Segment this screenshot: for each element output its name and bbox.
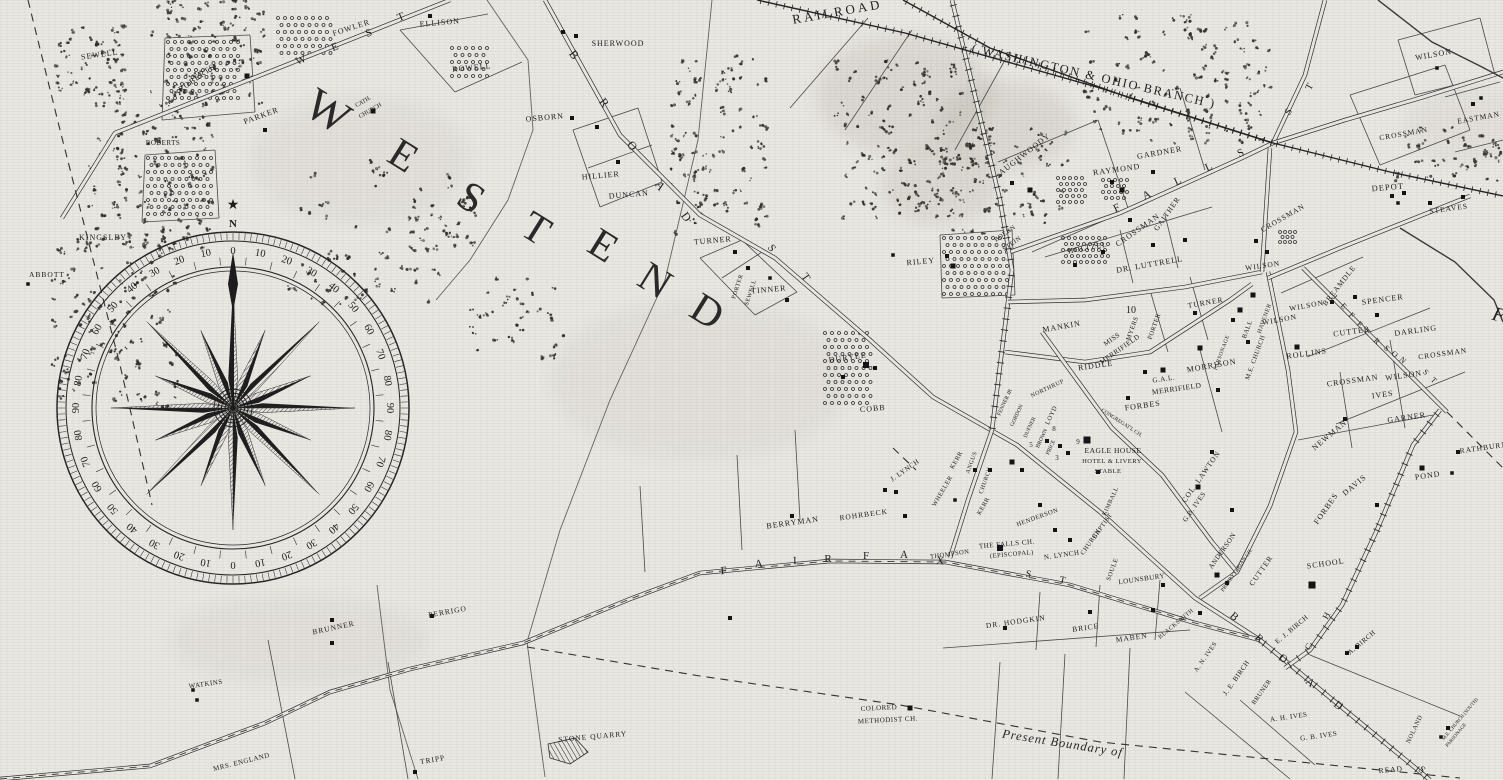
tree-cluster-dot: [693, 132, 698, 138]
tree-cluster-dot: [694, 222, 697, 224]
tree-cluster-dot: [129, 339, 134, 343]
tree-cluster-dot: [1247, 125, 1252, 130]
tree-cluster-dot: [491, 311, 494, 314]
tree-cluster-dot: [681, 59, 685, 64]
tree-cluster-dot: [1108, 107, 1111, 111]
street-name-letter: A: [754, 558, 763, 571]
tree-cluster-dot: [101, 213, 107, 217]
building-footprint: [1183, 238, 1187, 242]
tree-cluster-dot: [465, 235, 469, 240]
tree-cluster-dot: [1434, 164, 1439, 167]
tree-cluster-dot: [144, 233, 148, 237]
tree-cluster-dot: [1210, 55, 1214, 59]
tree-cluster-dot: [69, 37, 72, 41]
tree-cluster-dot: [1084, 30, 1089, 33]
tree-cluster-dot: [172, 0, 177, 4]
tree-cluster-dot: [1234, 40, 1237, 43]
building-footprint: [785, 298, 789, 302]
tree-cluster-dot: [1214, 78, 1219, 82]
tree-cluster-dot: [732, 77, 735, 80]
tree-cluster-dot: [1244, 118, 1249, 124]
tree-cluster-dot: [739, 60, 743, 65]
tree-cluster-dot: [67, 71, 72, 74]
tree-cluster-dot: [1206, 132, 1211, 134]
tree-cluster-dot: [113, 84, 116, 88]
tree-cluster-dot: [419, 237, 425, 242]
building-footprint: [1353, 295, 1357, 299]
tree-cluster-dot: [1061, 163, 1064, 166]
building-footprint: [1161, 368, 1166, 373]
parcel-line: [1240, 700, 1315, 765]
compass-degree-label: 10: [254, 556, 266, 569]
tree-cluster-dot: [454, 233, 459, 238]
map-label: BRICE: [1072, 621, 1100, 634]
building-footprint: [1126, 396, 1130, 400]
parcel-line: [1398, 18, 1480, 40]
tree-cluster-dot: [125, 188, 128, 192]
tree-cluster-dot: [1137, 35, 1141, 38]
compass-degree-label: 10: [254, 248, 266, 261]
tree-cluster-dot: [181, 17, 186, 21]
tree-cluster-dot: [219, 0, 225, 3]
street-name-letter: A: [900, 549, 908, 561]
tree-cluster-dot: [1203, 28, 1208, 33]
map-label: ROHRBECK: [839, 507, 889, 523]
street-name-letter: I: [793, 555, 797, 567]
tree-cluster-dot: [456, 221, 460, 225]
compass-degree-label: 60: [361, 322, 376, 337]
map-label: CROSSMAN: [1326, 372, 1379, 388]
tree-cluster-dot: [120, 53, 124, 56]
tree-cluster-dot: [1267, 49, 1271, 53]
building-footprint: [733, 250, 737, 254]
map-label: TURNER: [693, 234, 732, 246]
tree-cluster-dot: [702, 194, 708, 198]
tree-cluster-dot: [71, 29, 75, 34]
tree-cluster-dot: [709, 169, 712, 173]
map-label: MANKIN: [1042, 319, 1082, 335]
tree-cluster-dot: [1233, 21, 1237, 27]
tree-cluster-dot: [179, 4, 184, 8]
tree-cluster-dot: [1086, 96, 1091, 99]
map-label: 9: [1076, 438, 1080, 446]
tree-cluster-dot: [238, 62, 242, 67]
tree-cluster-dot: [1263, 84, 1266, 88]
map-label: E. J. BIRCH: [1273, 613, 1309, 645]
tree-cluster-dot: [93, 86, 98, 91]
map-label: WHEELER: [931, 474, 954, 508]
tree-cluster-dot: [414, 279, 417, 284]
tree-cluster-dot: [196, 216, 201, 222]
tree-cluster-dot: [962, 229, 966, 233]
tree-cluster-dot: [95, 102, 98, 107]
tree-cluster-dot: [169, 361, 174, 366]
tree-cluster-dot: [683, 173, 689, 177]
compass-star-icon: ★: [227, 198, 240, 213]
tree-cluster-dot: [408, 245, 412, 249]
tree-cluster-dot: [1137, 116, 1142, 121]
map-label: GORDON: [1009, 404, 1024, 428]
tree-cluster-dot: [1148, 118, 1154, 124]
tree-cluster-dot: [345, 296, 349, 300]
tree-cluster-dot: [1198, 75, 1203, 78]
tree-cluster-dot: [117, 134, 120, 137]
tree-cluster-dot: [1136, 129, 1140, 132]
building-footprint: [1038, 503, 1042, 507]
map-label: DARLING: [1394, 323, 1438, 338]
map-label: LOUNSBURY: [1118, 572, 1166, 586]
map-label: PRESBYTERIAN CH.: [1220, 547, 1255, 593]
tree-cluster-dot: [262, 11, 265, 16]
compass-degree-label: 60: [90, 322, 105, 337]
street-name-letter: R: [824, 553, 832, 565]
tree-cluster-dot: [69, 316, 73, 319]
tree-cluster-dot: [62, 280, 66, 283]
tree-cluster-dot: [1140, 57, 1145, 61]
building-footprint: [894, 490, 898, 494]
tree-cluster-dot: [241, 59, 244, 64]
compass-point: [233, 408, 319, 494]
tree-cluster-dot: [115, 331, 119, 337]
edge-letter-label: F: [1489, 303, 1503, 328]
tree-cluster-dot: [1093, 110, 1096, 113]
present-boundary-label: Present Boundary of: [1000, 726, 1124, 759]
map-label: WILSON: [1288, 298, 1324, 313]
map-label: DR. HODGKIN: [985, 613, 1046, 630]
compass-degree-label: 60: [361, 479, 376, 494]
tree-cluster-dot: [732, 130, 735, 133]
tree-cluster-dot: [100, 267, 103, 269]
tree-cluster-dot: [1184, 27, 1189, 32]
tree-cluster-dot: [1089, 60, 1095, 64]
tree-cluster-dot: [60, 50, 65, 53]
tree-cluster-dot: [136, 114, 140, 118]
street-name-letter: F: [1111, 202, 1122, 215]
tree-cluster-dot: [704, 197, 708, 201]
tree-cluster-dot: [1247, 102, 1252, 107]
map-label: 10: [1126, 305, 1136, 316]
tree-cluster-dot: [424, 227, 429, 231]
tree-cluster-dot: [1013, 212, 1016, 215]
map-label: WILSON: [1415, 47, 1453, 62]
tree-cluster-dot: [1498, 160, 1500, 163]
tree-cluster-dot: [1030, 210, 1034, 216]
tree-cluster-dot: [513, 289, 516, 291]
tree-cluster-dot: [184, 127, 189, 130]
tree-cluster-dot: [127, 232, 132, 238]
tree-cluster-dot: [174, 396, 177, 398]
tree-cluster-dot: [739, 125, 742, 128]
tree-cluster-dot: [1193, 73, 1198, 79]
map-label: FORBES: [1124, 399, 1161, 413]
map-label: GARNER: [1387, 410, 1427, 424]
tree-cluster-dot: [552, 287, 557, 290]
building-footprint: [1058, 444, 1062, 448]
building-footprint: [1251, 293, 1256, 298]
tree-cluster-dot: [196, 153, 199, 156]
map-label: DAVIS: [1341, 473, 1369, 498]
map-label: CUTTER: [1333, 324, 1371, 338]
map-label: GARDNER: [1136, 144, 1183, 161]
tree-cluster-dot: [430, 213, 433, 216]
tree-cluster-dot: [109, 81, 113, 84]
building-footprint: [1295, 345, 1300, 350]
tree-cluster-dot: [861, 152, 866, 157]
tree-cluster-dot: [1118, 121, 1121, 125]
tree-cluster-dot: [93, 189, 97, 194]
building-footprint: [574, 34, 578, 38]
tree-cluster-dot: [469, 308, 474, 311]
map-label: HENDERSON: [1016, 507, 1060, 529]
tree-cluster-dot: [1125, 64, 1130, 69]
building-footprint: [1101, 250, 1105, 254]
map-label: IVES: [1371, 389, 1394, 401]
tree-cluster-dot: [167, 309, 171, 313]
map-label: PERRIGO: [428, 604, 468, 620]
map-label: COBB: [860, 403, 886, 414]
tree-cluster-dot: [339, 303, 341, 305]
tree-cluster-dot: [673, 147, 677, 151]
tree-cluster-dot: [1044, 213, 1048, 217]
tree-cluster-dot: [485, 312, 489, 317]
compass-degree-label: 10: [200, 556, 212, 569]
tree-cluster-dot: [124, 374, 128, 379]
tree-cluster-dot: [1137, 121, 1142, 125]
road: [1008, 272, 1262, 302]
tree-cluster-dot: [100, 41, 104, 45]
tree-cluster-dot: [85, 62, 88, 66]
district-title-letter: E: [580, 220, 626, 273]
building-footprint: [330, 618, 334, 622]
tree-cluster-dot: [750, 145, 753, 149]
tree-cluster-dot: [476, 349, 479, 352]
parcel-line: [162, 112, 255, 120]
tree-cluster-dot: [752, 115, 758, 118]
tree-cluster-dot: [432, 245, 438, 251]
tree-cluster-dot: [881, 155, 885, 158]
compass-degree-label: 40: [326, 280, 341, 295]
parcel-line: [737, 455, 742, 550]
building-footprint: [1151, 170, 1155, 174]
tree-cluster-dot: [1250, 92, 1256, 97]
map-label: OSBORN: [525, 111, 564, 123]
building-footprint: [570, 116, 574, 120]
tree-cluster-dot: [172, 136, 178, 139]
street-name-letter: A: [652, 178, 669, 193]
tree-cluster-dot: [846, 141, 849, 145]
compass-degree-label: 10: [200, 248, 212, 261]
tree-cluster-dot: [112, 397, 117, 402]
tree-cluster-dot: [720, 110, 726, 116]
tree-cluster-dot: [191, 127, 196, 130]
map-label: READ: [1378, 764, 1403, 775]
tree-cluster-dot: [1427, 175, 1433, 178]
district-title-letter: T: [513, 203, 559, 256]
compass-degree-label: 90: [71, 403, 82, 414]
tree-cluster-dot: [108, 65, 111, 69]
map-label: DR. LUTTRELL: [1116, 254, 1184, 275]
tree-cluster-dot: [168, 181, 172, 184]
tree-cluster-dot: [720, 106, 725, 109]
boundary-dashed-line: [1447, 412, 1503, 468]
map-label: A. N. IVES: [1193, 641, 1219, 674]
tree-cluster-dot: [449, 232, 451, 235]
tree-cluster-dot: [702, 153, 707, 157]
tree-cluster-dot: [553, 343, 558, 348]
tree-cluster-dot: [95, 41, 98, 46]
map-label: LOYD: [1044, 405, 1059, 426]
map-canvas: 0102030405060708090807060504030201001020…: [0, 0, 1503, 780]
tree-cluster-dot: [200, 20, 204, 23]
tree-cluster-dot: [230, 22, 235, 26]
tree-cluster-dot: [82, 303, 86, 306]
tree-cluster-dot: [873, 171, 878, 175]
map-label: 8: [1052, 425, 1056, 433]
map-label: NEWMAN: [1310, 418, 1349, 452]
parcel-line: [1350, 65, 1445, 95]
parcel-line: [943, 630, 1190, 648]
tree-cluster-dot: [1255, 90, 1259, 94]
building-footprint: [1375, 313, 1379, 317]
tree-cluster-dot: [192, 27, 196, 32]
tree-cluster-dot: [951, 228, 955, 231]
tree-cluster-dot: [763, 166, 767, 168]
tree-cluster-dot: [1268, 86, 1272, 89]
building-footprint: [1073, 263, 1077, 267]
tree-cluster-dot: [469, 326, 474, 328]
tree-cluster-dot: [114, 58, 119, 64]
tree-cluster-dot: [58, 87, 63, 92]
tree-cluster-dot: [1453, 157, 1457, 160]
tree-cluster-dot: [739, 107, 743, 111]
tree-cluster-dot: [243, 0, 248, 3]
tree-cluster-dot: [740, 189, 742, 192]
tree-cluster-dot: [1103, 105, 1108, 111]
tree-cluster-dot: [715, 87, 718, 92]
tree-cluster-dot: [114, 31, 119, 33]
tree-cluster-dot: [727, 67, 733, 71]
tree-cluster-dot: [156, 401, 159, 405]
tree-cluster-dot: [752, 58, 754, 61]
tree-cluster-dot: [116, 90, 120, 93]
tree-cluster-dot: [1154, 118, 1159, 123]
tree-cluster-dot: [116, 101, 121, 105]
tree-cluster-dot: [670, 167, 673, 170]
tree-cluster-dot: [112, 201, 116, 206]
tree-cluster-dot: [516, 297, 519, 300]
tree-cluster-dot: [1238, 138, 1244, 144]
building-footprint: [330, 641, 334, 645]
tree-cluster-dot: [53, 325, 57, 329]
map-label: STEAVES: [1429, 201, 1469, 215]
tree-cluster-dot: [150, 30, 154, 36]
tree-cluster-dot: [119, 95, 124, 100]
tree-cluster-dot: [754, 223, 760, 228]
tree-cluster-dot: [1485, 178, 1488, 181]
map-label: (EPISCOPAL): [990, 549, 1034, 560]
tree-cluster-dot: [713, 189, 718, 193]
tree-cluster-dot: [113, 348, 116, 352]
building-footprint: [945, 254, 949, 258]
parcel-line: [400, 30, 455, 92]
map-label: HOTEL & LIVERY: [1082, 458, 1142, 465]
tree-cluster-dot: [243, 27, 246, 31]
map-label: WATKINS: [188, 678, 223, 691]
tree-cluster-dot: [734, 54, 739, 58]
tree-cluster-dot: [87, 298, 91, 303]
tree-cluster-dot: [203, 147, 206, 150]
tree-cluster-dot: [764, 125, 769, 131]
building-footprint: [1471, 102, 1475, 106]
tree-cluster-dot: [1162, 31, 1165, 36]
tree-cluster-dot: [111, 27, 114, 32]
tree-cluster-dot: [849, 200, 855, 205]
tree-cluster-dot: [120, 68, 126, 72]
tree-cluster-dot: [1213, 51, 1217, 55]
tree-cluster-dot: [1169, 123, 1172, 127]
tree-cluster-dot: [119, 391, 123, 396]
tree-cluster-dot: [757, 83, 760, 86]
tree-cluster-dot: [248, 92, 251, 97]
tree-cluster-dot: [764, 77, 768, 82]
tree-cluster-dot: [415, 218, 419, 222]
map-label: CROSSMAN: [1418, 346, 1468, 362]
building-footprint: [1128, 218, 1132, 222]
tree-cluster-dot: [1252, 39, 1257, 42]
tree-cluster-dot: [1180, 15, 1185, 18]
tree-cluster-dot: [437, 272, 441, 277]
tree-cluster-dot: [292, 287, 297, 292]
tree-cluster-dot: [154, 391, 160, 397]
building-footprint: [1151, 608, 1155, 612]
map-label: ELLISON: [419, 16, 460, 28]
tree-cluster-dot: [136, 362, 140, 366]
map-label: TRIPP: [419, 753, 446, 766]
tree-cluster-dot: [677, 90, 682, 95]
map-label: CHURCH: [1079, 528, 1102, 557]
map-label: ROBERTS: [146, 139, 181, 147]
tree-cluster-dot: [140, 270, 143, 274]
tree-cluster-dot: [1204, 139, 1209, 145]
map-label: KERR: [976, 496, 992, 516]
tree-cluster-dot: [425, 247, 430, 252]
map-label: EAGLE HOUSE: [1085, 446, 1142, 455]
compass-degree-label: 30: [147, 265, 162, 280]
tree-cluster-dot: [1027, 202, 1031, 208]
tree-cluster-dot: [1258, 111, 1262, 116]
map-label: PORTER: [731, 274, 745, 300]
compass-point: [147, 322, 233, 408]
tree-cluster-dot: [413, 267, 418, 271]
building-footprint: [1254, 239, 1258, 243]
tree-cluster-dot: [438, 216, 442, 221]
tree-cluster-dot: [333, 254, 339, 260]
tree-cluster-dot: [720, 136, 725, 138]
map-label: 3: [1055, 454, 1059, 462]
tree-cluster-dot: [1255, 46, 1259, 49]
building-footprint: [863, 362, 869, 368]
tree-cluster-dot: [374, 277, 379, 282]
tree-cluster-dot: [754, 218, 758, 222]
compass-degree-label: 30: [147, 536, 162, 551]
tree-cluster-dot: [120, 82, 124, 88]
tree-cluster-dot: [721, 70, 725, 74]
tree-cluster-dot: [520, 302, 525, 305]
tree-cluster-dot: [386, 227, 391, 233]
tree-cluster-dot: [875, 215, 878, 219]
compass-degree-label: 0: [230, 559, 235, 570]
parcel-line: [142, 155, 145, 222]
